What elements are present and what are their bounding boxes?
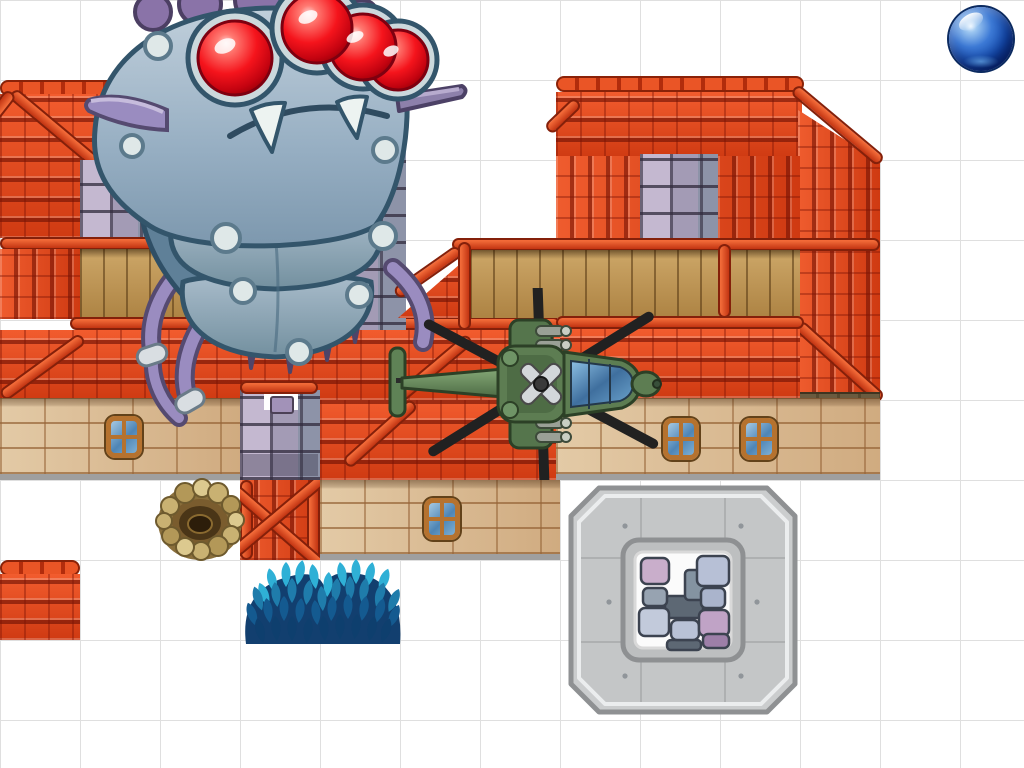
game-tilemap-canvas xyxy=(0,0,1024,768)
stone-octagon-platform[interactable] xyxy=(565,482,801,718)
blue-orb[interactable] xyxy=(949,7,1013,71)
right-roof-slope xyxy=(556,92,802,158)
right-stone-window xyxy=(640,154,718,242)
rock-pit-nest[interactable] xyxy=(152,478,247,563)
left-tile-wall xyxy=(0,249,80,319)
blue-bushes[interactable] xyxy=(238,558,406,648)
intake-upper xyxy=(502,350,518,366)
chimney-shadow-band xyxy=(242,454,318,476)
intake-lower xyxy=(502,402,518,418)
nest-pit-center xyxy=(188,515,212,533)
nose-sensor xyxy=(653,380,661,388)
cockpit-glass xyxy=(571,361,633,407)
center-house-window xyxy=(424,498,460,540)
right-roof-ridge xyxy=(556,76,804,92)
attack-helicopter[interactable] xyxy=(388,288,673,480)
x-brace-tile xyxy=(240,480,320,560)
right-house-window-2 xyxy=(741,418,777,460)
lone-roof-tile xyxy=(0,574,80,640)
right-post-beam xyxy=(718,244,731,318)
